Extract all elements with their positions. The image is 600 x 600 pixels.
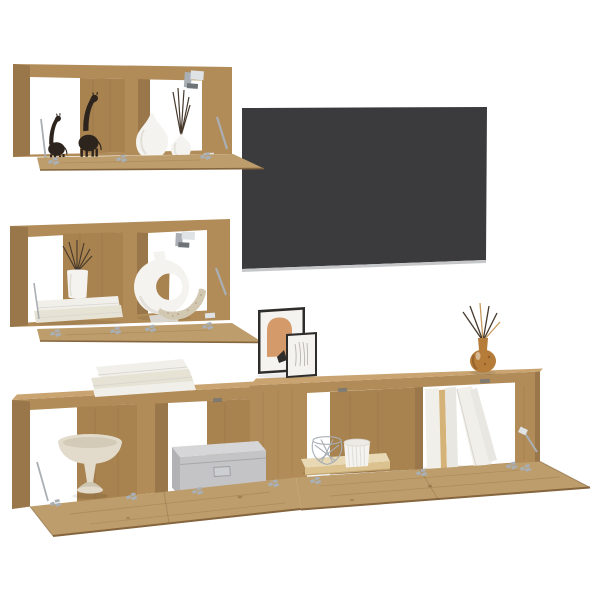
wall-mount-bracket bbox=[480, 379, 490, 384]
box-label-plate bbox=[214, 467, 230, 477]
tv bbox=[242, 107, 487, 272]
wood-knot bbox=[126, 517, 130, 519]
product-photo-stage bbox=[0, 0, 600, 600]
wall-mount-bracket bbox=[213, 398, 222, 402]
stand-left-side bbox=[12, 400, 30, 509]
picture-frame-small bbox=[286, 332, 317, 378]
wall-cabinet-middle bbox=[10, 219, 263, 343]
wood-knot bbox=[238, 496, 243, 499]
shadow bbox=[72, 493, 108, 499]
wood-knot bbox=[428, 485, 432, 488]
cabinet-left-side bbox=[10, 226, 28, 327]
divider-side-face bbox=[155, 403, 168, 498]
wood-knot bbox=[350, 499, 354, 501]
ribbed-pot bbox=[344, 439, 370, 468]
tv-screen bbox=[242, 107, 487, 269]
stay-arm-bracket bbox=[205, 313, 215, 319]
reed-sticks bbox=[463, 303, 500, 341]
wall-mount-bracket bbox=[338, 388, 347, 392]
cabinet-left-side bbox=[13, 64, 30, 157]
reed-diffuser-bottle bbox=[463, 303, 500, 375]
wall-cabinet-top bbox=[13, 64, 264, 170]
divider-side-face bbox=[415, 387, 423, 470]
